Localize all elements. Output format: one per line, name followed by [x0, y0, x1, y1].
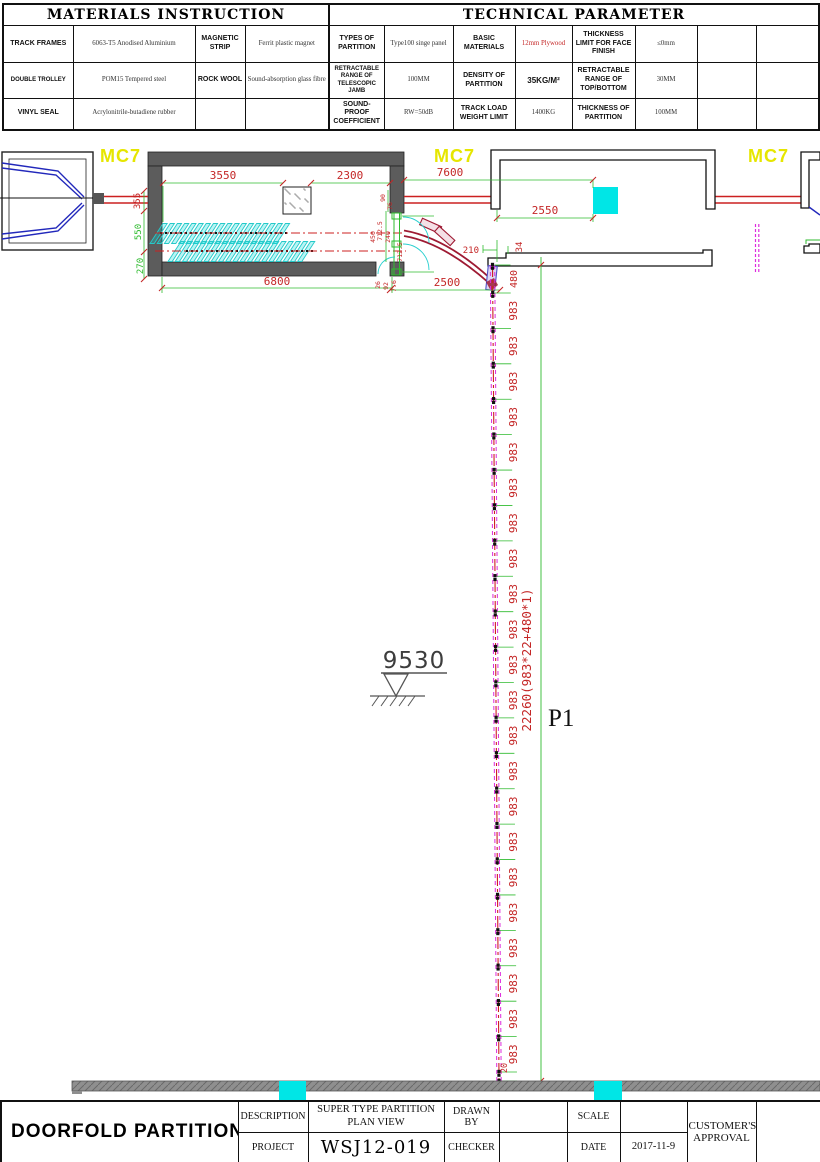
cell-empty: [697, 26, 756, 63]
level-value: 9530: [383, 648, 446, 674]
panel-dim-label: 983: [507, 513, 520, 533]
panel-joint-dot: [496, 861, 499, 864]
mc7-label-right: MC7: [748, 146, 789, 166]
panel-joint-dot: [494, 684, 497, 687]
panel-dim-label: 983: [507, 407, 520, 427]
cell-value: Type100 singe panel: [384, 26, 453, 63]
panel-dim-label: 983: [507, 549, 520, 569]
panel-joint-dot: [492, 401, 495, 404]
panel-joint-dot: [495, 720, 498, 723]
panel-joint-dot: [492, 432, 495, 435]
panel-joint-dot: [491, 326, 494, 329]
panel-joint-dot: [491, 267, 494, 270]
scale-label: SCALE: [567, 1101, 620, 1132]
panel-joint-dot: [495, 822, 498, 825]
customer-approval-label: CUSTOMER'S APPROVAL: [687, 1101, 756, 1162]
panel-joint-dot: [491, 295, 494, 298]
cell-label: DENSITY OF PARTITION: [453, 63, 515, 99]
cell-value: 30MM: [635, 63, 697, 99]
panel-joint-dot: [496, 932, 499, 935]
panel-joint-dot: [495, 826, 498, 829]
project-label: PROJECT: [238, 1132, 308, 1162]
cell-label: TYPES OF PARTITION: [329, 26, 384, 63]
dim-20: 20: [500, 1063, 510, 1073]
panel-joint-dot: [495, 716, 498, 719]
concrete-column: [283, 187, 311, 214]
dim-2500: 2500: [434, 276, 461, 289]
bottom-wall: [72, 1081, 820, 1100]
stacked-panels: [150, 224, 315, 262]
cell-value: 100MM: [384, 63, 453, 99]
mc7-label-mid: MC7: [434, 146, 475, 166]
cell-value-highlight: 12mm Plywood: [515, 26, 572, 63]
cell-value: 6063-T5 Anodised Aluminium: [73, 26, 195, 63]
panel-joint-dot: [492, 365, 495, 368]
dim-34: 34: [515, 242, 525, 253]
panel-dim-label: 983: [507, 478, 520, 498]
cell-empty: [697, 99, 756, 130]
cell-empty: [195, 99, 245, 130]
cell-empty: [756, 63, 819, 99]
dim-355: 355: [133, 193, 143, 209]
mc7-label-left: MC7: [100, 146, 141, 166]
cell-value: 100MM: [635, 99, 697, 130]
panel-dim-label: 983: [507, 301, 520, 321]
panel-joint-dot: [495, 755, 498, 758]
panel-dim-label: 983: [507, 1044, 520, 1064]
dim-7-6: 7.6: [390, 280, 398, 292]
cell-label: THICKNESS OF PARTITION: [572, 99, 635, 130]
cell-empty: [697, 63, 756, 99]
panel-joint-dot: [494, 680, 497, 683]
cyan-column: [594, 1081, 622, 1100]
panel-joint-dot: [492, 436, 495, 439]
date-value: 2017-11-9: [620, 1132, 687, 1162]
panel-joint-dot: [494, 613, 497, 616]
dim-480: 480: [509, 270, 520, 288]
checker-label: CHECKER: [444, 1132, 499, 1162]
level-marker: 9530: [370, 648, 447, 706]
panel-joint-dot: [493, 539, 496, 542]
dim-270: 270: [136, 258, 146, 274]
cell-value: POM15 Tempered steel: [73, 63, 195, 99]
description-label: DESCRIPTION: [238, 1101, 308, 1132]
panel-joint-dot: [497, 967, 500, 970]
panel-joint-dot: [495, 787, 498, 790]
panel-joint-dot: [494, 645, 497, 648]
panel-dim-label: 983: [507, 903, 520, 923]
technical-table-title: TECHNICAL PARAMETER: [329, 4, 819, 26]
cell-label: THICKNESS LIMIT FOR FACE FINISH: [572, 26, 635, 63]
panel-dim-label: 983: [507, 832, 520, 852]
panel-joint-dot: [497, 964, 500, 967]
dim-712-5-a: 712.5: [376, 221, 384, 241]
cell-value: 1400KG: [515, 99, 572, 130]
dim-26: 26: [374, 281, 382, 289]
partition-tag: P1: [548, 705, 574, 732]
dim-550: 550: [134, 224, 144, 240]
panel-joint-dot: [495, 751, 498, 754]
dim-712-5-b: 712.5: [396, 242, 404, 262]
cyan-column: [279, 1081, 306, 1100]
dim-240: 240: [384, 231, 392, 243]
panel-joint-dot: [493, 507, 496, 510]
cell-empty: [245, 99, 329, 130]
total-dim-label: 22260(983*22+480*1): [519, 589, 534, 732]
dim-210: 210: [463, 246, 479, 256]
date-label: DATE: [567, 1132, 620, 1162]
dim-7600: 7600: [437, 166, 464, 179]
panel-dim-label: 983: [507, 867, 520, 887]
panel-joint-dot: [496, 897, 499, 900]
cell-empty: [756, 26, 819, 63]
drawn-by-label: DRAWN BY: [444, 1101, 499, 1132]
company-cell: ® DOORFOLD DOORFOLD PARTITION: [1, 1101, 238, 1162]
cell-label: ROCK WOOL: [195, 63, 245, 99]
cyan-column: [593, 187, 618, 214]
panel-dim-label: 983: [507, 1009, 520, 1029]
plan-view-drawing: 3550 2300 6800 355 550 270 7600 2550: [0, 130, 820, 1100]
magenta-marker: [756, 224, 759, 272]
cell-label: SOUND-PROOF COEFFICIENT: [329, 99, 384, 130]
scale-value: [620, 1101, 687, 1132]
panel-joint-dot: [496, 857, 499, 860]
cell-value: Sound-absorption glass fibre: [245, 63, 329, 99]
panel-joint-dot: [493, 503, 496, 506]
panel-joint-dot: [495, 790, 498, 793]
dim-3550: 3550: [210, 169, 237, 182]
panel-dim-label: 983: [507, 974, 520, 994]
customer-approval-value: [756, 1101, 820, 1162]
cell-label: MAGNETIC STRIP: [195, 26, 245, 63]
cell-label: RETRACTABLE RANGE OF TOP/BOTTOM: [572, 63, 635, 99]
cell-label: TRACK FRAMES: [3, 26, 73, 63]
cell-value: Acrylonitrile-butadiene rubber: [73, 99, 195, 130]
panel-joint-dot: [493, 574, 496, 577]
panel-joint-dot: [491, 291, 494, 294]
panel-dim-label: 983: [507, 336, 520, 356]
dim-6800: 6800: [264, 275, 291, 288]
drawing-sheet: MATERIALS INSTRUCTION TECHNICAL PARAMETE…: [0, 0, 820, 1162]
panel-dim-label: 983: [507, 796, 520, 816]
panel-joint-dot: [491, 263, 494, 266]
dim-92: 92: [382, 282, 390, 290]
cell-value: ≤0mm: [635, 26, 697, 63]
dim-2300: 2300: [337, 169, 364, 182]
dim-76: 76: [386, 202, 394, 210]
panel-joint-dot: [492, 362, 495, 365]
cell-value: RW=50dB: [384, 99, 453, 130]
panel-joint-dot: [493, 472, 496, 475]
left-storage-room: [0, 152, 104, 250]
panel-joint-dot: [497, 1003, 500, 1006]
cell-label: TRACK LOAD WEIGHT LIMIT: [453, 99, 515, 130]
drawn-by-value: [499, 1101, 567, 1132]
cell-label: VINYL SEAL: [3, 99, 73, 130]
panel-joint-dot: [491, 330, 494, 333]
panel-dim-label: 983: [507, 938, 520, 958]
cell-value: 35KG/M²: [515, 63, 572, 99]
panel-dim-label: 983: [507, 442, 520, 462]
dim-2550: 2550: [532, 204, 559, 217]
panel-joint-dot: [492, 397, 495, 400]
panel-dim-label: 983: [507, 761, 520, 781]
cell-label: DOUBLE TROLLEY: [3, 63, 73, 99]
panel-joint-dot: [493, 542, 496, 545]
partition-run-p1: 4809839839839839839839839839839839839839…: [490, 257, 544, 1086]
panel-joint-dot: [497, 1038, 500, 1041]
title-block: ® DOORFOLD DOORFOLD PARTITION DESCRIPTIO…: [0, 1100, 820, 1162]
parameter-tables: MATERIALS INSTRUCTION TECHNICAL PARAMETE…: [2, 3, 820, 131]
cell-empty: [756, 99, 819, 130]
panel-joint-dot: [496, 928, 499, 931]
dim-90: 90: [379, 194, 387, 202]
panel-joint-dot: [494, 609, 497, 612]
materials-table-title: MATERIALS INSTRUCTION: [3, 4, 329, 26]
cell-value: Ferrit plastic magnet: [245, 26, 329, 63]
company-name: DOORFOLD PARTITION: [11, 1121, 238, 1143]
cell-label: BASIC MATERIALS: [453, 26, 515, 63]
panel-dim-label: 983: [507, 372, 520, 392]
project-value: WSJ12-019: [308, 1132, 444, 1162]
panel-joint-dot: [493, 578, 496, 581]
panel-joint-dot: [494, 649, 497, 652]
description-value: SUPER TYPE PARTITION PLAN VIEW: [308, 1101, 444, 1132]
panel-joint-dot: [497, 1034, 500, 1037]
checker-value: [499, 1132, 567, 1162]
panel-joint-dot: [493, 468, 496, 471]
panel-joint-dot: [497, 999, 500, 1002]
panel-joint-dot: [496, 893, 499, 896]
cell-label: RETRACTABLE RANGE OF TELESCOPIC JAMB: [329, 63, 384, 99]
